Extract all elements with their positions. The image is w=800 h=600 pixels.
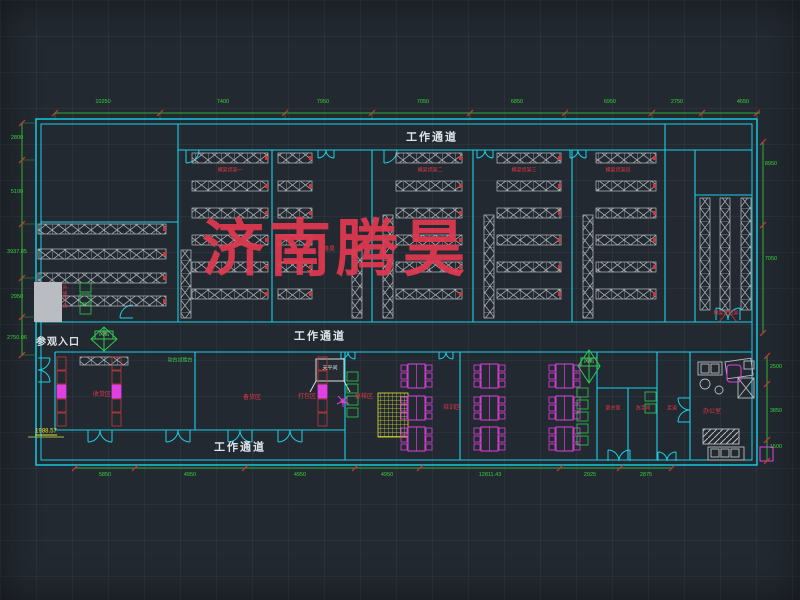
- chair: [474, 444, 480, 450]
- classroom-desks: [401, 364, 580, 451]
- rack-row: [192, 289, 268, 299]
- corridor-label-middle: 工作通道: [294, 332, 346, 343]
- chair: [499, 444, 505, 450]
- rack-zone-label: 横梁货架四: [605, 169, 630, 174]
- rack-end-marker: [558, 292, 561, 296]
- chair: [474, 373, 480, 379]
- rack-row: [596, 289, 656, 299]
- green-tag: [577, 424, 588, 433]
- equipment-label: 天平间: [322, 367, 337, 372]
- chair: [549, 428, 555, 434]
- datum-dimension: 1988.57: [35, 429, 57, 436]
- rack-row: [192, 181, 268, 191]
- dimension-label: 2875: [640, 472, 652, 478]
- rack-row: [497, 289, 561, 299]
- chair: [401, 365, 407, 371]
- chair: [401, 444, 407, 450]
- rack-row: [596, 153, 656, 163]
- wall-cabinet: [57, 371, 66, 384]
- chair: [426, 436, 432, 442]
- rack-row: [192, 153, 268, 163]
- equipment-box: [310, 359, 350, 392]
- rack-end-marker: [309, 184, 312, 188]
- green-tag: [80, 305, 91, 314]
- chair: [426, 381, 432, 387]
- wall-cabinet: [112, 385, 121, 398]
- rack-upright: [583, 215, 593, 318]
- chair: [499, 381, 505, 387]
- rack-end-marker: [309, 292, 312, 296]
- rack-end-marker: [309, 156, 312, 160]
- chair: [499, 397, 505, 403]
- dimension-label: 2750.06: [7, 335, 27, 341]
- room-label: 升降平台: [62, 285, 67, 309]
- chair: [549, 373, 555, 379]
- dimension-label: 4950: [294, 472, 306, 478]
- rack-end-marker: [653, 156, 656, 160]
- rack-end-marker: [558, 265, 561, 269]
- rack-upright: [484, 215, 494, 318]
- dimension-label: 5100: [11, 189, 23, 195]
- chair: [499, 373, 505, 379]
- chair: [426, 405, 432, 411]
- room-label: 备货区: [243, 395, 261, 401]
- desk-with-chairs: [549, 427, 580, 451]
- rack-row: [497, 235, 561, 245]
- dimension-label: 10250: [95, 99, 110, 105]
- wall-cabinet: [112, 413, 121, 426]
- loading-dock: [34, 282, 62, 322]
- chair: [549, 444, 555, 450]
- dimension-label: 12811.43: [479, 472, 502, 478]
- rack-zone-label: 横梁货架二: [417, 169, 442, 174]
- dimension-label: 7050: [417, 99, 429, 105]
- chair: [549, 413, 555, 419]
- cad-floorplan-viewport[interactable]: 工作通道 工作通道 工作通道 参观入口 横梁货架一 横梁货架二 横梁货架三 横梁…: [0, 0, 800, 600]
- wall-cabinet: [318, 399, 327, 412]
- chair: [474, 428, 480, 434]
- chair: [549, 397, 555, 403]
- rack-row: [278, 181, 312, 191]
- watermark-small-text: 腾昊: [323, 247, 335, 253]
- dimension-label: 4950: [184, 472, 196, 478]
- wall-cabinet: [57, 399, 66, 412]
- chair: [499, 436, 505, 442]
- dimension-label: 2950: [11, 294, 23, 300]
- chair: [549, 365, 555, 371]
- chair: [426, 365, 432, 371]
- room-label: 更衣室: [605, 407, 620, 412]
- rack-row: [396, 289, 462, 299]
- dimension-label: 3937.85: [7, 249, 27, 255]
- chair: [549, 436, 555, 442]
- test-bench-label: 动台试验台: [167, 359, 192, 364]
- wall-cabinet: [57, 413, 66, 426]
- chair: [549, 381, 555, 387]
- rack-end-marker: [653, 184, 656, 188]
- room-label: 打包区: [298, 394, 316, 400]
- chair: [499, 405, 505, 411]
- wall-cabinet: [57, 385, 66, 398]
- dimension-label: 2925: [584, 472, 596, 478]
- rack-zone-label: 横梁式货架: [713, 312, 738, 317]
- chair: [574, 381, 580, 387]
- yellow-zone: [378, 393, 408, 437]
- rack-row: [497, 262, 561, 272]
- dimension-label: 5850: [99, 472, 111, 478]
- green-tag: [347, 408, 358, 417]
- rack-row: [38, 273, 166, 283]
- rack-row: [497, 153, 561, 163]
- rack-end-marker: [163, 276, 166, 280]
- dimension-label: 6850: [511, 99, 523, 105]
- desk-with-chairs: [401, 364, 432, 388]
- rack-zone-label: 横梁货架三: [511, 169, 536, 174]
- rack-end-marker: [558, 238, 561, 242]
- rack-end-marker: [653, 238, 656, 242]
- green-tag: [577, 400, 588, 409]
- room-label: 办公室: [703, 409, 721, 415]
- rack-row: [497, 208, 561, 218]
- chair: [426, 413, 432, 419]
- green-tag: [645, 392, 656, 401]
- rack-end-marker: [163, 299, 166, 303]
- chair: [426, 373, 432, 379]
- chair: [474, 365, 480, 371]
- dimension-label: 2500: [770, 364, 782, 370]
- dimension-label: 1500: [770, 444, 782, 450]
- dimension-label: 8950: [765, 161, 777, 167]
- chair: [549, 405, 555, 411]
- chair: [426, 397, 432, 403]
- rack-upright: [700, 198, 710, 310]
- chair: [426, 444, 432, 450]
- rack-row: [497, 181, 561, 191]
- rack-upright: [720, 198, 730, 310]
- rack-end-marker: [459, 156, 462, 160]
- dimension-label: 4950: [381, 472, 393, 478]
- rack-row: [596, 181, 656, 191]
- chair: [401, 373, 407, 379]
- green-tag: [80, 283, 91, 292]
- desk-with-chairs: [474, 364, 505, 388]
- desk-with-chairs: [474, 396, 505, 420]
- room-label: 复核区: [355, 394, 373, 400]
- chair: [499, 365, 505, 371]
- rack-row: [38, 224, 166, 234]
- chair: [426, 428, 432, 434]
- green-tag: [347, 372, 358, 381]
- office-furniture: [698, 358, 754, 398]
- chair: [474, 405, 480, 411]
- desk-with-chairs: [549, 364, 580, 388]
- desk-with-chairs: [549, 396, 580, 420]
- rack-end-marker: [163, 252, 166, 256]
- dimension-label: 6950: [604, 99, 616, 105]
- rack-end-marker: [653, 211, 656, 215]
- chair: [474, 436, 480, 442]
- rack-end-marker: [558, 211, 561, 215]
- floorplan-drawing: [0, 0, 800, 600]
- rack-zone-label: 横梁货架一: [217, 169, 242, 174]
- rack-end-marker: [459, 184, 462, 188]
- rack-end-marker: [653, 265, 656, 269]
- rack-row: [396, 153, 462, 163]
- chair: [474, 413, 480, 419]
- rack-row: [596, 262, 656, 272]
- chair: [474, 397, 480, 403]
- rack-upright: [741, 198, 751, 310]
- watermark-text: 济南腾昊: [202, 198, 470, 288]
- dimension-label: 2750: [671, 99, 683, 105]
- corridor-label-top: 工作通道: [406, 133, 458, 144]
- chair: [499, 428, 505, 434]
- dimension-label: 7050: [765, 256, 777, 262]
- rack-row: [596, 208, 656, 218]
- green-tag: [577, 388, 588, 397]
- office-furniture: [703, 429, 744, 460]
- rack-row: [38, 249, 166, 259]
- corridor-label-bottom: 工作通道: [214, 443, 266, 454]
- rack-row: [278, 289, 312, 299]
- rack-end-marker: [265, 156, 268, 160]
- rack-end-marker: [558, 184, 561, 188]
- rack-end-marker: [265, 184, 268, 188]
- dimension-label: 2800: [11, 135, 23, 141]
- chair: [474, 381, 480, 387]
- dimension-label: 3850: [770, 408, 782, 414]
- wall-cabinet: [318, 385, 327, 398]
- dimension-label: 7950: [317, 99, 329, 105]
- room-label: 走道: [667, 407, 677, 412]
- rack-end-marker: [265, 292, 268, 296]
- room-label: 收货区: [93, 392, 111, 398]
- rack-upright: [181, 250, 191, 318]
- fan-label: 风机: [99, 333, 109, 338]
- dimension-label: 7400: [217, 99, 229, 105]
- room-label: 培训区: [443, 405, 461, 411]
- chair: [401, 381, 407, 387]
- desk-with-chairs: [474, 427, 505, 451]
- rack-row: [396, 181, 462, 191]
- rack-row: [596, 235, 656, 245]
- rack-row: [278, 153, 312, 163]
- wall-cabinet: [112, 399, 121, 412]
- dimension-label: 4550: [737, 99, 749, 105]
- wall-cabinet: [57, 357, 66, 370]
- rack-end-marker: [459, 292, 462, 296]
- entrance-label: 参观入口: [36, 338, 80, 348]
- chair: [499, 413, 505, 419]
- room-label: 洗手间: [635, 407, 650, 412]
- chair: [574, 373, 580, 379]
- rack-end-marker: [163, 227, 166, 231]
- rack-end-marker: [653, 292, 656, 296]
- fan-label: 风机: [584, 360, 594, 365]
- wall-cabinet: [112, 371, 121, 384]
- wall-cabinet: [318, 413, 327, 426]
- rack-end-marker: [558, 156, 561, 160]
